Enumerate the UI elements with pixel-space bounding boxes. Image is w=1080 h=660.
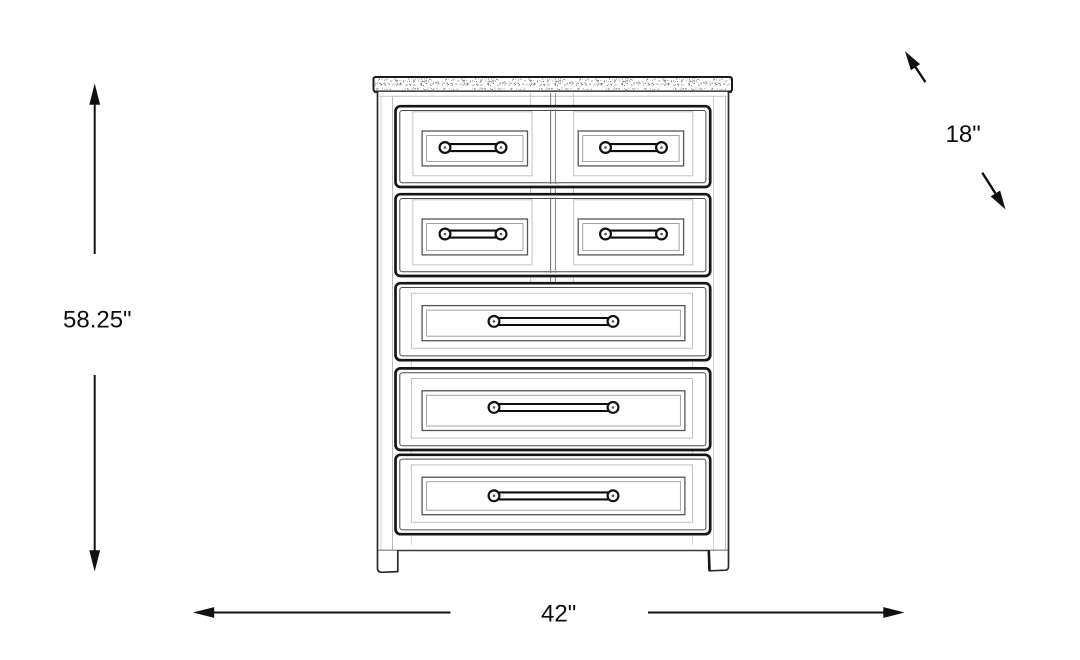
svg-text:18": 18" xyxy=(946,121,981,148)
svg-text:42": 42" xyxy=(541,601,576,628)
svg-text:58.25": 58.25" xyxy=(63,307,132,334)
